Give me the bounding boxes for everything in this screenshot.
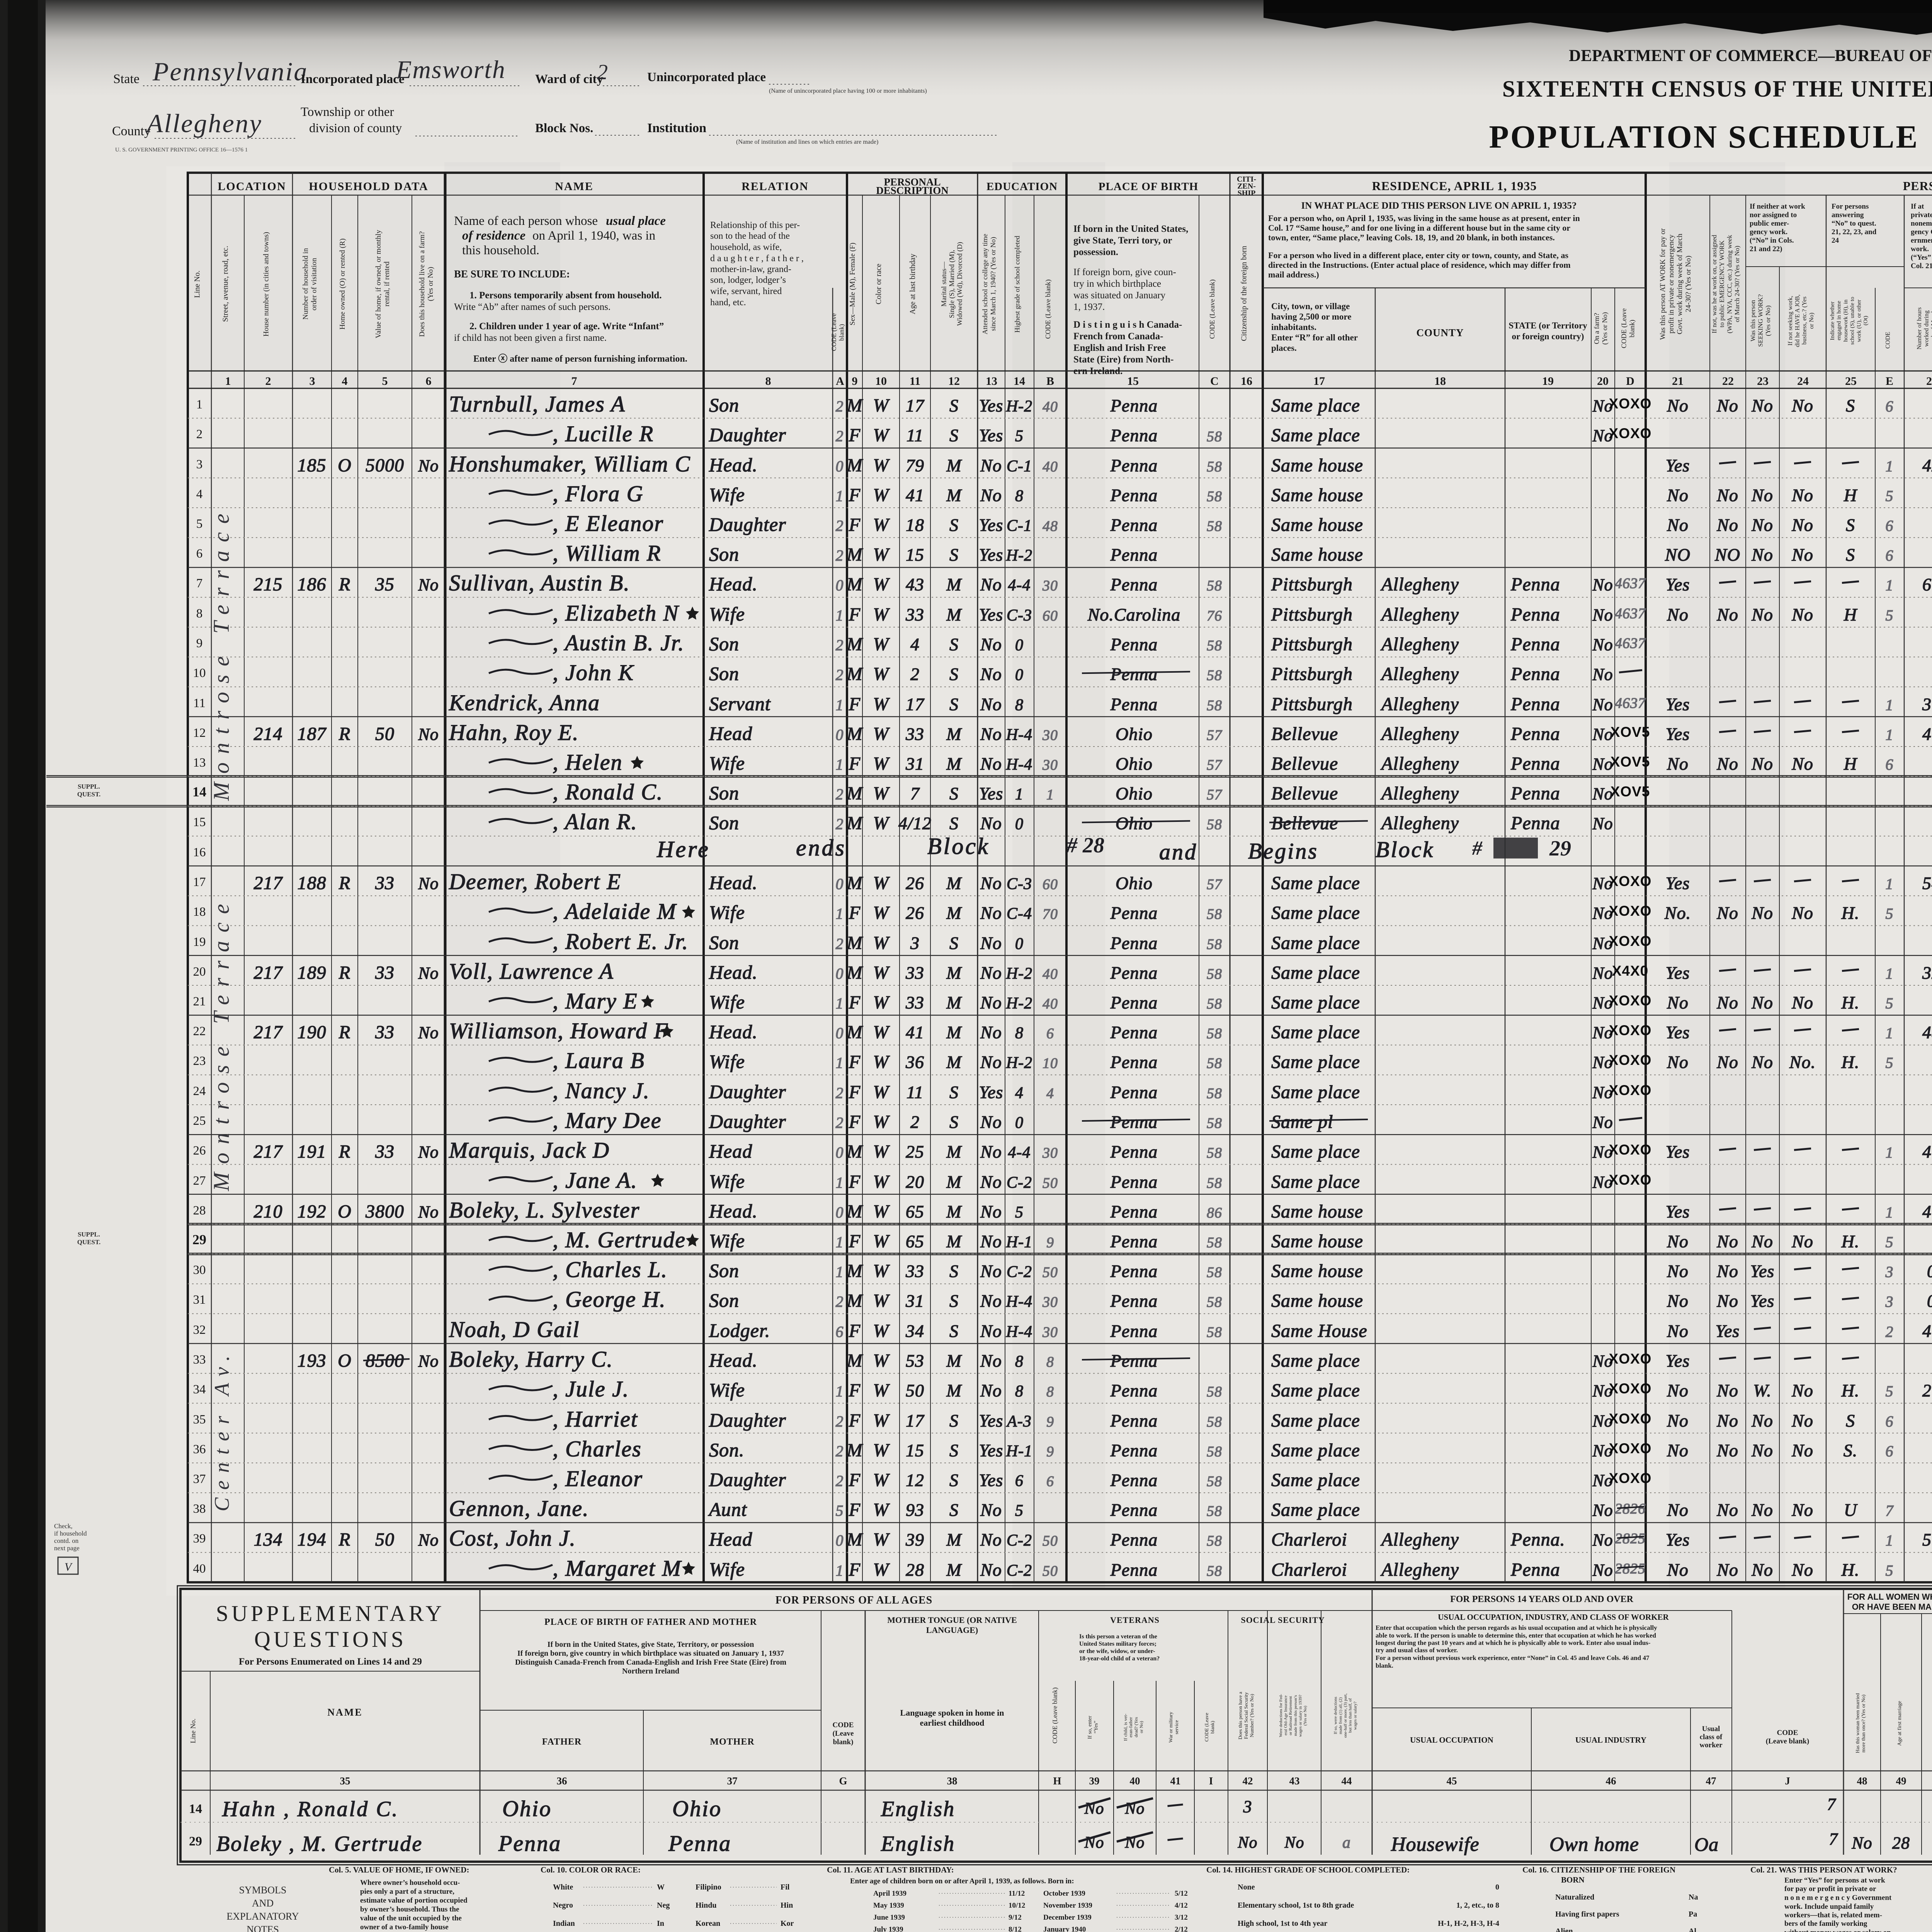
svg-text:No: No — [980, 1231, 1002, 1251]
svg-text:and: and — [1159, 839, 1197, 864]
svg-text:Son: Son — [709, 812, 739, 833]
svg-text:private or: private or — [1911, 211, 1932, 219]
svg-text:Yes: Yes — [1716, 1321, 1740, 1341]
svg-text:2: 2 — [1886, 1323, 1894, 1340]
svg-text:No: No — [418, 1202, 439, 1221]
svg-text:Same house: Same house — [1271, 1291, 1363, 1311]
svg-text:M: M — [847, 1440, 864, 1461]
svg-text:(WPA, NYA, CCC, etc.) during w: (WPA, NYA, CCC, etc.) during week — [1726, 235, 1733, 333]
svg-text:XOXO: XOXO — [1609, 933, 1652, 949]
svg-text:Head: Head — [709, 1528, 752, 1550]
svg-text:43: 43 — [1289, 1775, 1300, 1787]
svg-text:Same place: Same place — [1271, 903, 1360, 923]
svg-text:wife, servant, hired: wife, servant, hired — [710, 286, 782, 296]
svg-text:No: No — [980, 933, 1002, 953]
svg-text:S: S — [949, 425, 959, 445]
svg-text:2: 2 — [836, 398, 844, 415]
svg-text:2: 2 — [836, 1442, 844, 1460]
svg-text:QUEST.: QUEST. — [77, 791, 101, 798]
svg-text:Penna: Penna — [1110, 1261, 1158, 1281]
svg-text:93: 93 — [906, 1500, 924, 1520]
svg-text:Yes: Yes — [1666, 694, 1690, 714]
svg-text:No: No — [1667, 1500, 1689, 1520]
svg-text:Penna: Penna — [1110, 634, 1158, 654]
svg-text:25: 25 — [193, 1114, 206, 1128]
svg-text:CODE: CODE — [1777, 1729, 1798, 1737]
svg-text:No: No — [1592, 665, 1613, 684]
svg-text:40: 40 — [1922, 1321, 1932, 1341]
svg-text:No: No — [1751, 1052, 1773, 1072]
svg-text:6: 6 — [1886, 547, 1894, 564]
svg-text:58: 58 — [1207, 936, 1222, 952]
svg-text:work. Include unpaid fami: work. Include unpaid family — [1784, 1903, 1874, 1911]
svg-text:W: W — [873, 1082, 890, 1102]
svg-text:6: 6 — [1886, 517, 1894, 534]
svg-text:Penna: Penna — [1110, 1560, 1158, 1580]
svg-text:week of March: week of March — [1930, 310, 1932, 347]
svg-text:Col. 21): Col. 21) — [1911, 262, 1932, 270]
svg-text:Usual: Usual — [1702, 1725, 1720, 1733]
svg-text:C: C — [1210, 375, 1219, 388]
svg-text:M: M — [847, 813, 864, 833]
svg-text:M: M — [946, 1530, 962, 1549]
svg-text:LOCATION: LOCATION — [218, 180, 286, 193]
svg-text:58: 58 — [1207, 1055, 1222, 1071]
svg-text:XOXO: XOXO — [1609, 1082, 1652, 1098]
svg-text:1: 1 — [836, 905, 844, 922]
svg-text:If child, is vet-: If child, is vet- — [1122, 1714, 1128, 1741]
svg-text:Yes: Yes — [1666, 456, 1690, 475]
svg-text:Allegheny: Allegheny — [1380, 813, 1459, 833]
svg-text:9/12: 9/12 — [1009, 1913, 1022, 1922]
svg-text:NO: NO — [1714, 545, 1740, 565]
svg-text:33: 33 — [375, 1141, 395, 1162]
svg-text:SIXTEENTH CENSUS OF THE UNITED: SIXTEENTH CENSUS OF THE UNITED STATES: 1… — [1502, 76, 1932, 102]
svg-text:5: 5 — [1886, 995, 1894, 1012]
svg-text:1: 1 — [836, 1174, 844, 1191]
svg-text:M: M — [946, 1172, 962, 1192]
svg-text:W: W — [873, 1350, 890, 1371]
svg-text:14: 14 — [192, 784, 206, 799]
svg-text:give State, Terri tory, or: give State, Terri tory, or — [1073, 235, 1172, 246]
svg-text:0: 0 — [1015, 636, 1024, 654]
svg-text:Lodger.: Lodger. — [709, 1320, 770, 1341]
svg-text:2. Children under 1 year of a: 2. Children under 1 year of age. Write “… — [469, 321, 664, 332]
svg-text:Marital status—: Marital status— — [940, 261, 947, 306]
svg-text:MOTHER: MOTHER — [710, 1737, 754, 1747]
svg-text:15: 15 — [193, 815, 206, 829]
svg-text:Yes: Yes — [1750, 1261, 1775, 1281]
svg-text:NO: NO — [1665, 545, 1690, 565]
svg-text:Same place: Same place — [1271, 873, 1360, 893]
svg-text:bers of the family working: bers of the family working — [1784, 1920, 1867, 1928]
svg-text:2: 2 — [836, 815, 844, 833]
svg-text:CODE (Leave blank): CODE (Leave blank) — [1208, 279, 1216, 339]
svg-text:Head.: Head. — [709, 573, 758, 595]
svg-text:blank): blank) — [1628, 320, 1636, 337]
svg-text:Penna: Penna — [1110, 515, 1158, 535]
svg-text:Penna: Penna — [1110, 963, 1158, 983]
svg-text:inhabitants.: inhabitants. — [1271, 322, 1316, 332]
svg-text:No: No — [1716, 1231, 1738, 1251]
svg-text:F: F — [849, 485, 861, 505]
svg-text:XOV5: XOV5 — [1611, 754, 1650, 770]
svg-text:S: S — [949, 664, 959, 684]
svg-text:210: 210 — [254, 1201, 283, 1222]
svg-text:58: 58 — [1207, 488, 1222, 505]
svg-text:or foreign country): or foreign country) — [1512, 332, 1584, 341]
svg-text:36: 36 — [905, 1052, 924, 1072]
svg-text:Same house: Same house — [1271, 544, 1363, 565]
svg-text:No: No — [1791, 903, 1813, 923]
svg-text:Yes: Yes — [979, 396, 1003, 415]
svg-text:53: 53 — [906, 1351, 924, 1371]
svg-text:H-4: H-4 — [1006, 726, 1032, 744]
svg-text:22: 22 — [193, 1024, 206, 1038]
svg-text:Number of household in: Number of household in — [302, 248, 310, 320]
svg-text:High school, 1st to 4th year: High school, 1st to 4th year — [1238, 1919, 1327, 1928]
svg-text:W: W — [873, 1112, 890, 1132]
svg-text:June 1939: June 1939 — [873, 1913, 905, 1922]
svg-text:December 1939: December 1939 — [1043, 1913, 1092, 1922]
svg-text:W: W — [873, 1410, 890, 1431]
svg-text:Name of each person whose: Name of each person whose — [454, 214, 598, 228]
svg-text:XOXO: XOXO — [1609, 873, 1652, 889]
svg-text:Na: Na — [1689, 1893, 1698, 1901]
svg-text:2: 2 — [910, 1112, 920, 1132]
svg-text:17: 17 — [906, 694, 925, 714]
svg-text:Col. 5. VALUE OF HOME, IF OWN: Col. 5. VALUE OF HOME, IF OWNED: — [329, 1865, 469, 1874]
svg-text:D i s t i n g u i s h Canada: D i s t i n g u i s h Canada- — [1073, 320, 1182, 330]
svg-text:F: F — [849, 515, 861, 535]
svg-text:No: No — [418, 456, 439, 475]
svg-text:For a person who lived in a di: For a person who lived in a different pl… — [1268, 250, 1568, 260]
svg-text:blank): blank) — [833, 1738, 854, 1746]
svg-text:37: 37 — [193, 1472, 206, 1486]
svg-text:2/12: 2/12 — [1175, 1925, 1188, 1932]
svg-text:Pennsylvania: Pennsylvania — [152, 57, 308, 86]
svg-text:W: W — [873, 1321, 890, 1341]
svg-text:No: No — [418, 964, 439, 983]
svg-text:6: 6 — [1886, 756, 1894, 773]
svg-text:No: No — [1716, 1560, 1738, 1580]
svg-text:G: G — [839, 1775, 847, 1787]
svg-text:C-2: C-2 — [1007, 1532, 1032, 1549]
svg-text:42: 42 — [1243, 1775, 1253, 1787]
svg-text:1: 1 — [196, 398, 203, 412]
svg-text:Penna: Penna — [1110, 545, 1158, 565]
svg-text:Son: Son — [709, 663, 739, 684]
svg-text:1: 1 — [225, 375, 231, 388]
svg-text:If at: If at — [1911, 202, 1924, 211]
svg-text:192: 192 — [298, 1201, 327, 1222]
svg-text:S: S — [949, 545, 959, 565]
svg-text:No: No — [980, 873, 1002, 893]
svg-text:W: W — [873, 1052, 890, 1072]
svg-text:Penna: Penna — [1110, 1351, 1158, 1371]
svg-text:No: No — [1851, 1833, 1872, 1852]
svg-text:F: F — [849, 1112, 861, 1132]
svg-text:1: 1 — [1886, 1144, 1894, 1161]
svg-text:Bellevue: Bellevue — [1271, 783, 1338, 804]
svg-text:“No” to quest.: “No” to quest. — [1832, 219, 1876, 228]
svg-text:6: 6 — [1015, 1472, 1024, 1490]
svg-text:35: 35 — [193, 1413, 206, 1427]
svg-text:PLACE OF BIRTH: PLACE OF BIRTH — [1099, 180, 1198, 193]
svg-text:For a person without previous: For a person without previous work exper… — [1376, 1654, 1650, 1662]
svg-text:pies only a part of a st: pies only a part of a structure, — [360, 1888, 454, 1896]
svg-text:Charleroi: Charleroi — [1271, 1529, 1347, 1550]
svg-text:79: 79 — [906, 456, 924, 475]
svg-text:a: a — [1342, 1834, 1351, 1852]
svg-text:21, 22, 23, and: 21, 22, 23, and — [1832, 228, 1877, 236]
svg-text:RELATION: RELATION — [742, 180, 809, 193]
svg-text:having 2,500 or more: having 2,500 or more — [1271, 312, 1351, 321]
svg-text:Son: Son — [709, 1260, 739, 1281]
svg-text:No: No — [1592, 755, 1613, 774]
svg-text:10/12: 10/12 — [1009, 1901, 1025, 1910]
svg-text:Boleky, Harry C.: Boleky, Harry C. — [449, 1347, 613, 1372]
svg-text:Same place: Same place — [1271, 1350, 1360, 1371]
svg-text:1: 1 — [1886, 457, 1894, 475]
svg-text:No: No — [418, 1023, 439, 1042]
svg-text:19: 19 — [1542, 375, 1554, 388]
svg-text:#: # — [1472, 837, 1483, 859]
svg-text:No: No — [1716, 1411, 1738, 1430]
svg-text:17: 17 — [1313, 375, 1325, 388]
svg-text:, Alan R.: , Alan R. — [553, 809, 638, 834]
svg-text:58: 58 — [1207, 966, 1222, 982]
svg-text:S.: S. — [1844, 1440, 1858, 1460]
svg-text:F: F — [849, 1321, 861, 1341]
svg-text:31: 31 — [905, 1291, 924, 1311]
svg-text:6: 6 — [1886, 398, 1894, 415]
svg-text:Head.: Head. — [709, 1200, 758, 1222]
svg-text:217: 217 — [254, 963, 283, 983]
svg-text:No: No — [980, 903, 1002, 923]
svg-text:H: H — [1844, 485, 1858, 505]
svg-text:U: U — [1844, 1500, 1858, 1520]
svg-text:8: 8 — [1046, 1384, 1054, 1400]
svg-text:Yes: Yes — [979, 605, 1003, 624]
svg-text:mail address.): mail address.) — [1268, 270, 1319, 279]
svg-text:Penna: Penna — [1110, 1411, 1158, 1430]
svg-text:B: B — [1046, 375, 1054, 388]
svg-text:H-2: H-2 — [1006, 547, 1032, 565]
svg-text:Is this person a veteran of th: Is this person a veteran of the — [1079, 1633, 1157, 1640]
svg-text:No: No — [980, 1261, 1002, 1281]
svg-text:28: 28 — [1892, 1833, 1910, 1852]
svg-text:If foreign born, give country: If foreign born, give country in which b… — [517, 1649, 784, 1658]
svg-text:70: 70 — [1043, 906, 1058, 922]
svg-text:M: M — [946, 575, 962, 594]
svg-text:4: 4 — [196, 487, 203, 501]
svg-text:Deemer, Robert E: Deemer, Robert E — [449, 869, 621, 894]
svg-text:Hahn , Ronald C.: Hahn , Ronald C. — [222, 1797, 399, 1821]
svg-text:Allegheny: Allegheny — [145, 109, 262, 138]
svg-text:eran-father: eran-father — [1128, 1717, 1133, 1738]
svg-text:49: 49 — [1896, 1775, 1906, 1787]
svg-text:Penna: Penna — [668, 1831, 731, 1856]
svg-text:M: M — [946, 963, 962, 983]
svg-text:SYMBOLS: SYMBOLS — [239, 1884, 287, 1896]
svg-text:8: 8 — [1015, 1024, 1024, 1042]
svg-text:W: W — [873, 604, 890, 625]
svg-text:33: 33 — [375, 963, 395, 983]
svg-text:58: 58 — [1207, 906, 1222, 922]
svg-text:5: 5 — [1886, 1383, 1894, 1400]
svg-text:order of visitation: order of visitation — [310, 258, 318, 311]
svg-text:S: S — [949, 1500, 959, 1520]
svg-text:Penna: Penna — [1110, 664, 1158, 684]
svg-text:USUAL INDUSTRY: USUAL INDUSTRY — [1575, 1735, 1646, 1745]
svg-text:58: 58 — [1207, 697, 1222, 714]
svg-text:CODE: CODE — [833, 1721, 854, 1729]
svg-text:6: 6 — [836, 1323, 844, 1340]
svg-text:Same place: Same place — [1271, 933, 1360, 953]
svg-text:FOR PERSONS OF ALL AGES: FOR PERSONS OF ALL AGES — [776, 1594, 932, 1606]
svg-text:W: W — [873, 515, 890, 535]
svg-text:No: No — [1716, 605, 1738, 624]
svg-text:M: M — [847, 455, 864, 476]
svg-text:Hahn, Roy E.: Hahn, Roy E. — [449, 720, 579, 745]
svg-text:No: No — [980, 1321, 1002, 1341]
svg-text:XOXO: XOXO — [1609, 1411, 1652, 1427]
svg-text:No: No — [1716, 396, 1738, 415]
svg-text:Yes: Yes — [979, 1082, 1003, 1102]
svg-text:No: No — [1667, 396, 1689, 415]
svg-text:Yes: Yes — [1750, 1291, 1775, 1311]
svg-text:No: No — [1667, 993, 1689, 1012]
svg-text:May 1939: May 1939 — [873, 1901, 904, 1910]
svg-text:Yes: Yes — [979, 1411, 1003, 1430]
svg-text:Penna: Penna — [1110, 1321, 1158, 1341]
svg-text:F: F — [849, 753, 861, 774]
svg-text:58: 58 — [1207, 1264, 1222, 1281]
svg-text:earliest childhood: earliest childhood — [920, 1718, 985, 1728]
svg-text:Enter “R” for all other: Enter “R” for all other — [1271, 333, 1358, 342]
svg-text:No: No — [1667, 1321, 1689, 1341]
svg-text:If so, were deductions: If so, were deductions — [1333, 1697, 1338, 1734]
svg-text:household, as wife,: household, as wife, — [710, 242, 782, 252]
svg-text:No: No — [418, 575, 439, 594]
svg-text:58: 58 — [1207, 518, 1222, 534]
svg-text:R: R — [338, 724, 350, 744]
svg-text:, Charles: , Charles — [553, 1436, 642, 1461]
svg-text:M: M — [946, 456, 962, 475]
svg-text:public emer-: public emer- — [1750, 219, 1789, 228]
svg-text:Filipino: Filipino — [696, 1883, 721, 1891]
svg-text:Yes: Yes — [979, 1440, 1003, 1460]
svg-text:M: M — [847, 395, 864, 416]
svg-text:Same house: Same house — [1271, 1231, 1363, 1252]
svg-text:H: H — [1844, 605, 1858, 624]
svg-text:Son.: Son. — [709, 1439, 745, 1461]
svg-text:Alien: Alien — [1555, 1927, 1573, 1932]
svg-text:3: 3 — [1885, 1263, 1894, 1281]
svg-text:Wife: Wife — [709, 1230, 745, 1252]
svg-text:M: M — [946, 1052, 962, 1072]
svg-text:M: M — [946, 724, 962, 744]
svg-text:housework (H), in: housework (H), in — [1843, 299, 1849, 342]
svg-text:No: No — [1751, 515, 1773, 535]
svg-text:this household.: this household. — [462, 243, 539, 257]
svg-text:1, 2, etc., to 8: 1, 2, etc., to 8 — [1456, 1901, 1499, 1910]
svg-text:24-30? (Yes or No): 24-30? (Yes or No) — [1684, 256, 1692, 312]
svg-text:, Ronald C.: , Ronald C. — [553, 779, 663, 804]
svg-text:Block: Block — [1376, 837, 1434, 862]
svg-text:W: W — [873, 544, 890, 565]
svg-text:SUPPL.: SUPPL. — [78, 783, 100, 790]
svg-text:J: J — [1785, 1775, 1790, 1787]
svg-text:COUNTY: COUNTY — [1416, 327, 1464, 338]
svg-text:W: W — [657, 1883, 665, 1891]
svg-text:Wife: Wife — [709, 1170, 745, 1192]
svg-text:C-4: C-4 — [1007, 905, 1032, 923]
svg-text:Head.: Head. — [709, 454, 758, 476]
svg-text:made from (1) all, (2): made from (1) all, (2) — [1338, 1697, 1343, 1734]
svg-text:3: 3 — [1885, 1293, 1894, 1310]
svg-text:SUPPL.: SUPPL. — [78, 1231, 100, 1238]
svg-text:without money wages or salary: without money wages or salary on — [1784, 1929, 1891, 1932]
svg-text:186: 186 — [298, 574, 327, 595]
svg-text:Indicate whether: Indicate whether — [1829, 301, 1835, 340]
svg-text:made from this person’s: made from this person’s — [1293, 1695, 1298, 1736]
svg-text:58: 58 — [1207, 1026, 1222, 1042]
svg-text:23: 23 — [193, 1054, 206, 1068]
svg-text:, Robert E. Jr.: , Robert E. Jr. — [553, 929, 689, 954]
svg-text:(Name of institution and lines: (Name of institution and lines on which … — [736, 139, 878, 145]
svg-text:40: 40 — [1922, 1202, 1932, 1221]
svg-text:20: 20 — [1922, 1381, 1932, 1400]
svg-text:20: 20 — [906, 1172, 924, 1192]
svg-text:Citizenship of the foreign bor: Citizenship of the foreign born — [1240, 246, 1248, 341]
svg-text:60: 60 — [1043, 608, 1058, 624]
svg-text:191: 191 — [298, 1141, 327, 1162]
svg-text:1: 1 — [1886, 577, 1894, 594]
svg-text:Attended school or college any: Attended school or college any time — [981, 234, 989, 334]
svg-text:NOTES: NOTES — [247, 1924, 279, 1932]
svg-text:34: 34 — [905, 1321, 924, 1341]
svg-text:H-2: H-2 — [1006, 1054, 1032, 1072]
svg-text:48: 48 — [1043, 518, 1058, 534]
svg-text:Pittsburgh: Pittsburgh — [1271, 574, 1353, 595]
svg-text:5: 5 — [1015, 1502, 1024, 1520]
svg-text:Head.: Head. — [709, 1021, 758, 1043]
svg-text:Ohio: Ohio — [1116, 813, 1153, 833]
svg-text:20: 20 — [1597, 375, 1609, 388]
svg-text:F: F — [849, 1172, 861, 1192]
svg-text:H-4: H-4 — [1006, 1293, 1032, 1311]
svg-text:No: No — [980, 456, 1002, 475]
svg-text:, Elizabeth N: , Elizabeth N — [553, 600, 680, 626]
svg-text:R: R — [338, 963, 350, 983]
svg-text:S: S — [949, 634, 959, 654]
svg-text:No: No — [1751, 485, 1773, 505]
svg-text:No: No — [1592, 605, 1613, 624]
svg-text:(Yes or No): (Yes or No) — [1764, 305, 1772, 336]
svg-text:7: 7 — [571, 375, 577, 388]
svg-text:Boleky , M. Gertrude: Boleky , M. Gertrude — [216, 1832, 423, 1856]
svg-text:Son: Son — [709, 932, 739, 953]
svg-text:11: 11 — [906, 1082, 924, 1102]
svg-text:M: M — [946, 1351, 962, 1371]
svg-text:3: 3 — [1243, 1797, 1252, 1816]
svg-text:S: S — [949, 1321, 959, 1341]
svg-text:SOCIAL SECURITY: SOCIAL SECURITY — [1241, 1615, 1325, 1625]
svg-text:Daughter: Daughter — [709, 424, 786, 446]
svg-text:5: 5 — [1886, 1233, 1894, 1251]
